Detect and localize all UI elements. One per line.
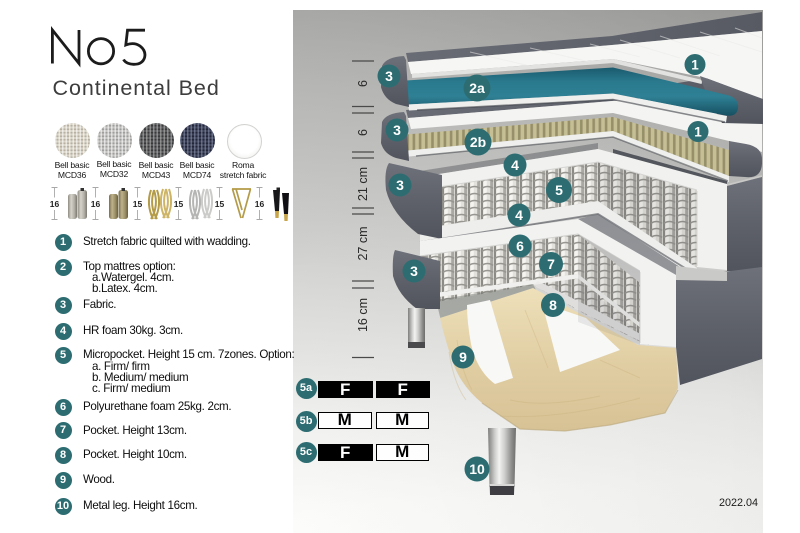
svg-text:16: 16 (91, 199, 101, 209)
svg-text:9: 9 (459, 349, 467, 365)
svg-text:2b: 2b (470, 134, 486, 150)
svg-text:6: 6 (356, 80, 370, 87)
svg-text:15: 15 (215, 199, 225, 209)
svg-text:3: 3 (410, 263, 418, 279)
svg-text:2a: 2a (469, 80, 485, 96)
svg-text:3: 3 (393, 122, 401, 138)
svg-text:1: 1 (691, 58, 699, 73)
svg-text:10: 10 (469, 461, 485, 477)
svg-text:27 cm: 27 cm (356, 226, 370, 260)
svg-text:15: 15 (174, 199, 184, 209)
svg-text:4: 4 (515, 207, 523, 223)
svg-text:4: 4 (511, 157, 519, 173)
svg-text:3: 3 (385, 68, 393, 84)
svg-text:15: 15 (133, 199, 143, 209)
svg-text:7: 7 (547, 256, 555, 272)
svg-text:16 cm: 16 cm (356, 298, 370, 332)
svg-text:6: 6 (356, 129, 370, 136)
svg-text:1: 1 (694, 125, 702, 140)
svg-text:21 cm: 21 cm (356, 167, 370, 201)
svg-text:6: 6 (516, 238, 524, 254)
svg-text:16: 16 (50, 199, 59, 209)
svg-text:8: 8 (549, 297, 557, 313)
svg-text:5: 5 (555, 182, 563, 198)
svg-text:16: 16 (255, 199, 265, 209)
svg-text:3: 3 (396, 177, 404, 193)
